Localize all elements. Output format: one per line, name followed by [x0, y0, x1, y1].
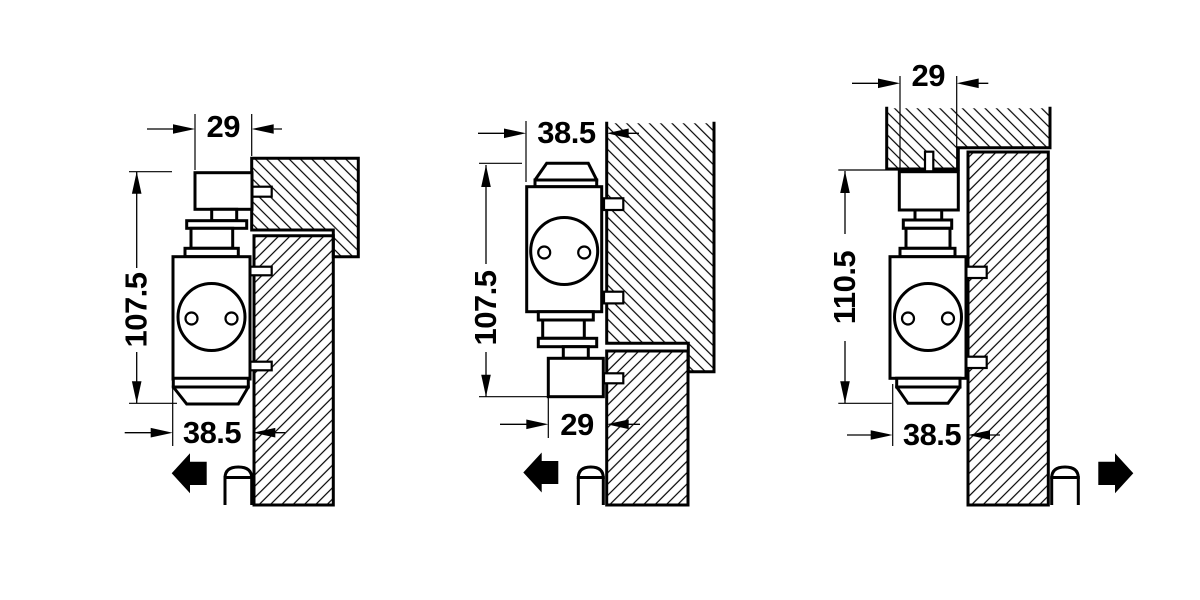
dim-label-height: 107.5 — [119, 272, 154, 347]
mounting-screw — [604, 292, 623, 304]
body-end-cap — [173, 378, 248, 404]
spindle-block — [906, 228, 950, 248]
dim-label-top: 29 — [912, 58, 946, 93]
mounting-screw — [250, 362, 272, 371]
spindle-block — [543, 320, 585, 338]
dim-label-bottom: 38.5 — [903, 417, 962, 452]
dim-label-height: 110.5 — [827, 251, 862, 325]
spindle-pin — [925, 152, 933, 172]
door-closer-installation-drawing: 29 107.5 38.5 — [0, 0, 1200, 600]
door-leaf — [968, 152, 1048, 505]
door-knob — [1052, 467, 1079, 505]
diagram-door-mounting-pull-side: 29 107.5 38.5 — [119, 109, 359, 505]
mounting-screw — [604, 373, 623, 383]
mounting-screw — [604, 198, 623, 210]
arm-bracket — [899, 172, 958, 210]
swing-direction-arrow-left-icon — [523, 453, 558, 493]
dim-label-bottom: 38.5 — [183, 415, 242, 450]
dim-label-bottom: 29 — [560, 407, 594, 442]
technical-drawing-page: 29 107.5 38.5 — [0, 0, 1200, 600]
spindle-neck — [212, 209, 237, 220]
diagram-door-mounting-push-side: 29 110.5 38.5 — [827, 58, 1133, 505]
dim-label-top: 38.5 — [537, 115, 596, 150]
dim-label-top: 29 — [207, 109, 241, 144]
arm-bracket — [195, 173, 252, 210]
arm-bracket — [548, 358, 603, 396]
body-end-cap — [535, 163, 597, 186]
dim-label-height: 107.5 — [468, 270, 503, 345]
valve-screw — [226, 313, 238, 325]
dimension-height: 107.5 — [119, 172, 177, 404]
mounting-screw — [251, 187, 272, 197]
mounting-screw — [250, 267, 272, 276]
valve-screw — [942, 313, 954, 325]
frame-transom — [607, 123, 714, 371]
valve-screw — [578, 247, 590, 259]
body-end-cap — [897, 378, 960, 403]
door-knob — [578, 467, 603, 505]
diagram-transom-mounting: 38.5 107.5 29 — [468, 115, 714, 505]
spindle-block — [191, 228, 233, 248]
valve-screw — [186, 313, 198, 325]
swing-direction-arrow-right-icon — [1098, 453, 1133, 493]
door-knob — [225, 467, 252, 505]
valve-screw — [902, 313, 914, 325]
spindle-neck — [563, 347, 588, 359]
swing-direction-arrow-left-icon — [172, 453, 207, 493]
dimension-height: 110.5 — [827, 170, 898, 403]
valve-screw — [538, 247, 550, 259]
